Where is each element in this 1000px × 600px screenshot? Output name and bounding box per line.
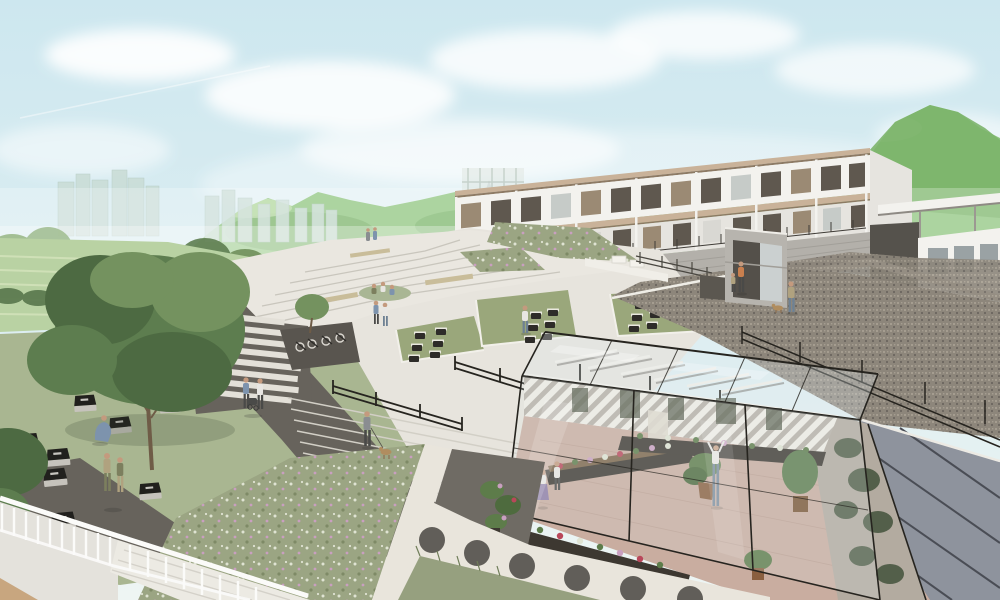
rendering-canvas <box>0 0 1000 600</box>
bike-area-tree-canopy <box>295 294 329 320</box>
white-planter <box>612 256 626 263</box>
elevator-tower <box>725 228 787 308</box>
architectural-rendering <box>0 0 1000 600</box>
